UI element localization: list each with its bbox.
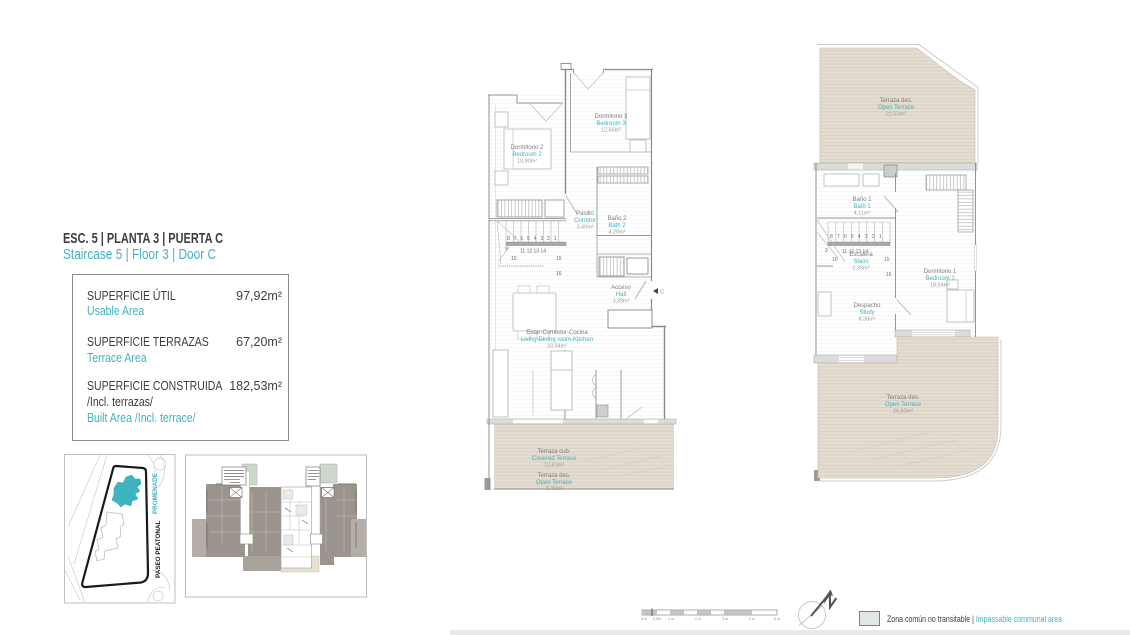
svg-text:Pasillo: Pasillo xyxy=(576,211,594,217)
svg-text:Escalera: Escalera xyxy=(849,252,873,258)
svg-text:Dormitorio 3: Dormitorio 3 xyxy=(595,114,628,120)
svg-text:12,66m²: 12,66m² xyxy=(601,128,621,134)
svg-text:33,94m²: 33,94m² xyxy=(547,344,567,350)
svg-text:3 m: 3 m xyxy=(722,617,728,621)
svg-text:4,20m²: 4,20m² xyxy=(608,230,625,236)
svg-text:Living-Dining room-Kitchen: Living-Dining room-Kitchen xyxy=(521,337,593,343)
svg-text:Acceso: Acceso xyxy=(611,285,631,291)
svg-text:Bedroom 3: Bedroom 3 xyxy=(596,121,626,127)
svg-text:2 m: 2 m xyxy=(695,617,701,621)
svg-text:0,5m: 0,5m xyxy=(653,617,661,621)
svg-text:26,60m²: 26,60m² xyxy=(893,409,913,415)
svg-text:87654321: 87654321 xyxy=(507,236,560,242)
svg-text:Stairs: Stairs xyxy=(853,259,868,265)
svg-text:9: 9 xyxy=(825,248,828,254)
svg-text:Covered Terrace: Covered Terrace xyxy=(532,456,577,462)
svg-text:9: 9 xyxy=(505,247,508,253)
svg-text:Estar-Comedor-Cocina: Estar-Comedor-Cocina xyxy=(526,330,588,336)
svg-text:3,40m²: 3,40m² xyxy=(576,225,593,231)
svg-text:12,81m²: 12,81m² xyxy=(544,463,564,469)
svg-text:Open Terrace: Open Terrace xyxy=(878,105,915,111)
svg-text:8,38m²: 8,38m² xyxy=(858,317,875,323)
svg-text:Terraza des.: Terraza des. xyxy=(879,98,912,104)
svg-text:3,39m²: 3,39m² xyxy=(612,299,629,305)
svg-text:2,39m²: 2,39m² xyxy=(852,266,869,272)
svg-text:Despacho: Despacho xyxy=(853,303,881,309)
svg-text:Open Terrace: Open Terrace xyxy=(885,402,922,408)
svg-text:4 m: 4 m xyxy=(749,617,755,621)
svg-text:4,11m²: 4,11m² xyxy=(854,211,871,217)
svg-text:PASEO PEATONAL: PASEO PEATONAL xyxy=(155,520,162,578)
svg-text:15: 15 xyxy=(884,257,890,263)
svg-text:11 12 13 14: 11 12 13 14 xyxy=(520,249,546,255)
svg-text:Terraza des.: Terraza des. xyxy=(537,473,570,479)
svg-text:Dormitorio 1: Dormitorio 1 xyxy=(924,269,957,275)
svg-text:PROMENADE: PROMENADE xyxy=(152,473,159,514)
svg-text:Hall: Hall xyxy=(616,292,626,298)
svg-text:Study: Study xyxy=(859,310,874,316)
svg-text:Terraza des.: Terraza des. xyxy=(886,395,919,401)
svg-text:1 m: 1 m xyxy=(668,617,674,621)
svg-text:15: 15 xyxy=(556,256,562,262)
svg-text:Bath 2: Bath 2 xyxy=(608,223,626,229)
svg-text:Terraza cub.: Terraza cub. xyxy=(537,449,570,455)
svg-text:Bath 1: Bath 1 xyxy=(853,204,871,210)
svg-text:Dormitorio 2: Dormitorio 2 xyxy=(511,145,544,151)
svg-text:10,90m²: 10,90m² xyxy=(517,159,537,165)
svg-text:Corridor: Corridor xyxy=(574,218,596,224)
svg-text:87654321: 87654321 xyxy=(830,234,886,240)
svg-text:16: 16 xyxy=(556,271,562,277)
svg-text:3,46m²: 3,46m² xyxy=(545,486,562,492)
svg-text:10: 10 xyxy=(832,257,838,263)
svg-text:16: 16 xyxy=(886,272,892,278)
svg-text:Bedroom 2: Bedroom 2 xyxy=(512,152,542,158)
svg-text:22,53m²: 22,53m² xyxy=(886,112,906,118)
svg-text:Bedroom 1: Bedroom 1 xyxy=(925,276,955,282)
svg-text:0 m: 0 m xyxy=(641,617,647,621)
svg-text:Baño 2: Baño 2 xyxy=(607,216,627,222)
svg-text:Baño 1: Baño 1 xyxy=(852,197,872,203)
svg-text:5 m: 5 m xyxy=(774,617,780,621)
svg-text:18,54m²: 18,54m² xyxy=(930,283,950,289)
svg-text:C: C xyxy=(660,290,664,296)
svg-text:10: 10 xyxy=(511,256,517,262)
